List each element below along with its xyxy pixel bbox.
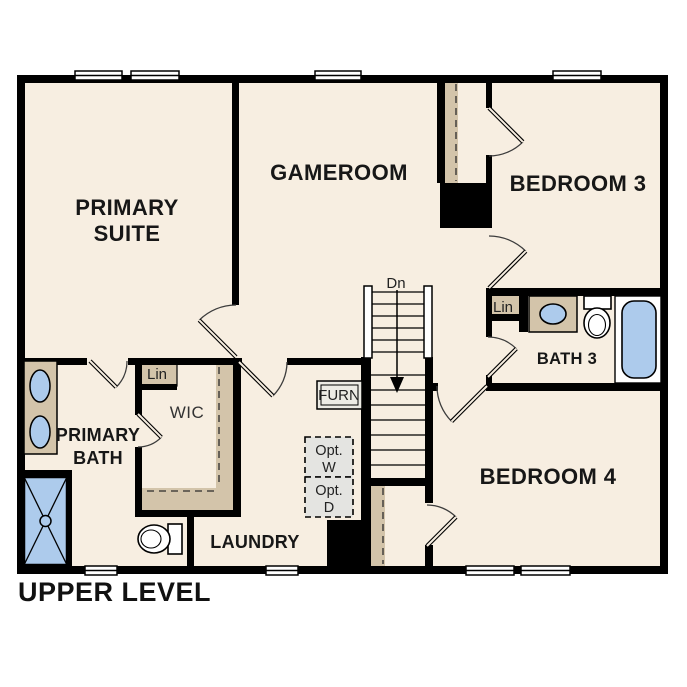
- linen-label-primary: Lin: [147, 366, 167, 383]
- sink-icon: [30, 370, 50, 402]
- window: [315, 71, 361, 80]
- primary-toilet: [138, 524, 182, 554]
- room-label-primary-bath-2: BATH: [73, 448, 123, 468]
- room-label-bath3: BATH 3: [537, 350, 597, 368]
- room-label-primary-suite-1: PRIMARY: [75, 195, 178, 220]
- floor-plan-svg: Dn: [0, 0, 687, 687]
- room-label-primary-suite-2: SUITE: [94, 221, 161, 246]
- room-label-laundry: LAUNDRY: [210, 532, 299, 552]
- room-label-primary-bath-1: PRIMARY: [56, 425, 140, 445]
- linen-label-bath3: Lin: [493, 299, 513, 316]
- page-title: UPPER LEVEL: [18, 577, 211, 607]
- chase-block: [440, 183, 492, 228]
- window: [75, 71, 122, 80]
- furnace-label: FURN: [318, 387, 360, 404]
- room-label-wic: WIC: [170, 403, 205, 422]
- sink-icon: [30, 416, 50, 448]
- bathtub: [615, 296, 661, 383]
- optional-dryer-label-1: Opt.: [315, 483, 342, 499]
- window: [466, 566, 514, 575]
- optional-dryer-label-2: D: [324, 500, 334, 516]
- optional-washer-label-1: Opt.: [315, 443, 342, 459]
- window: [131, 71, 179, 80]
- window: [553, 71, 601, 80]
- shower: [24, 477, 67, 565]
- primary-vanity: [24, 361, 57, 454]
- sink-icon: [540, 304, 566, 324]
- room-label-gameroom: GAMEROOM: [270, 160, 408, 185]
- shower-drain: [40, 516, 51, 527]
- bath3-vanity: [529, 296, 577, 332]
- window: [85, 566, 117, 575]
- window: [521, 566, 570, 575]
- window: [266, 566, 298, 575]
- room-label-bedroom4: BEDROOM 4: [480, 464, 617, 489]
- floor-plan-image: Dn: [0, 0, 687, 687]
- bath3-toilet: [584, 296, 611, 338]
- room-label-bedroom3: BEDROOM 3: [510, 171, 647, 196]
- stairs-dn-label: Dn: [386, 275, 405, 292]
- optional-washer-label-2: W: [322, 460, 336, 476]
